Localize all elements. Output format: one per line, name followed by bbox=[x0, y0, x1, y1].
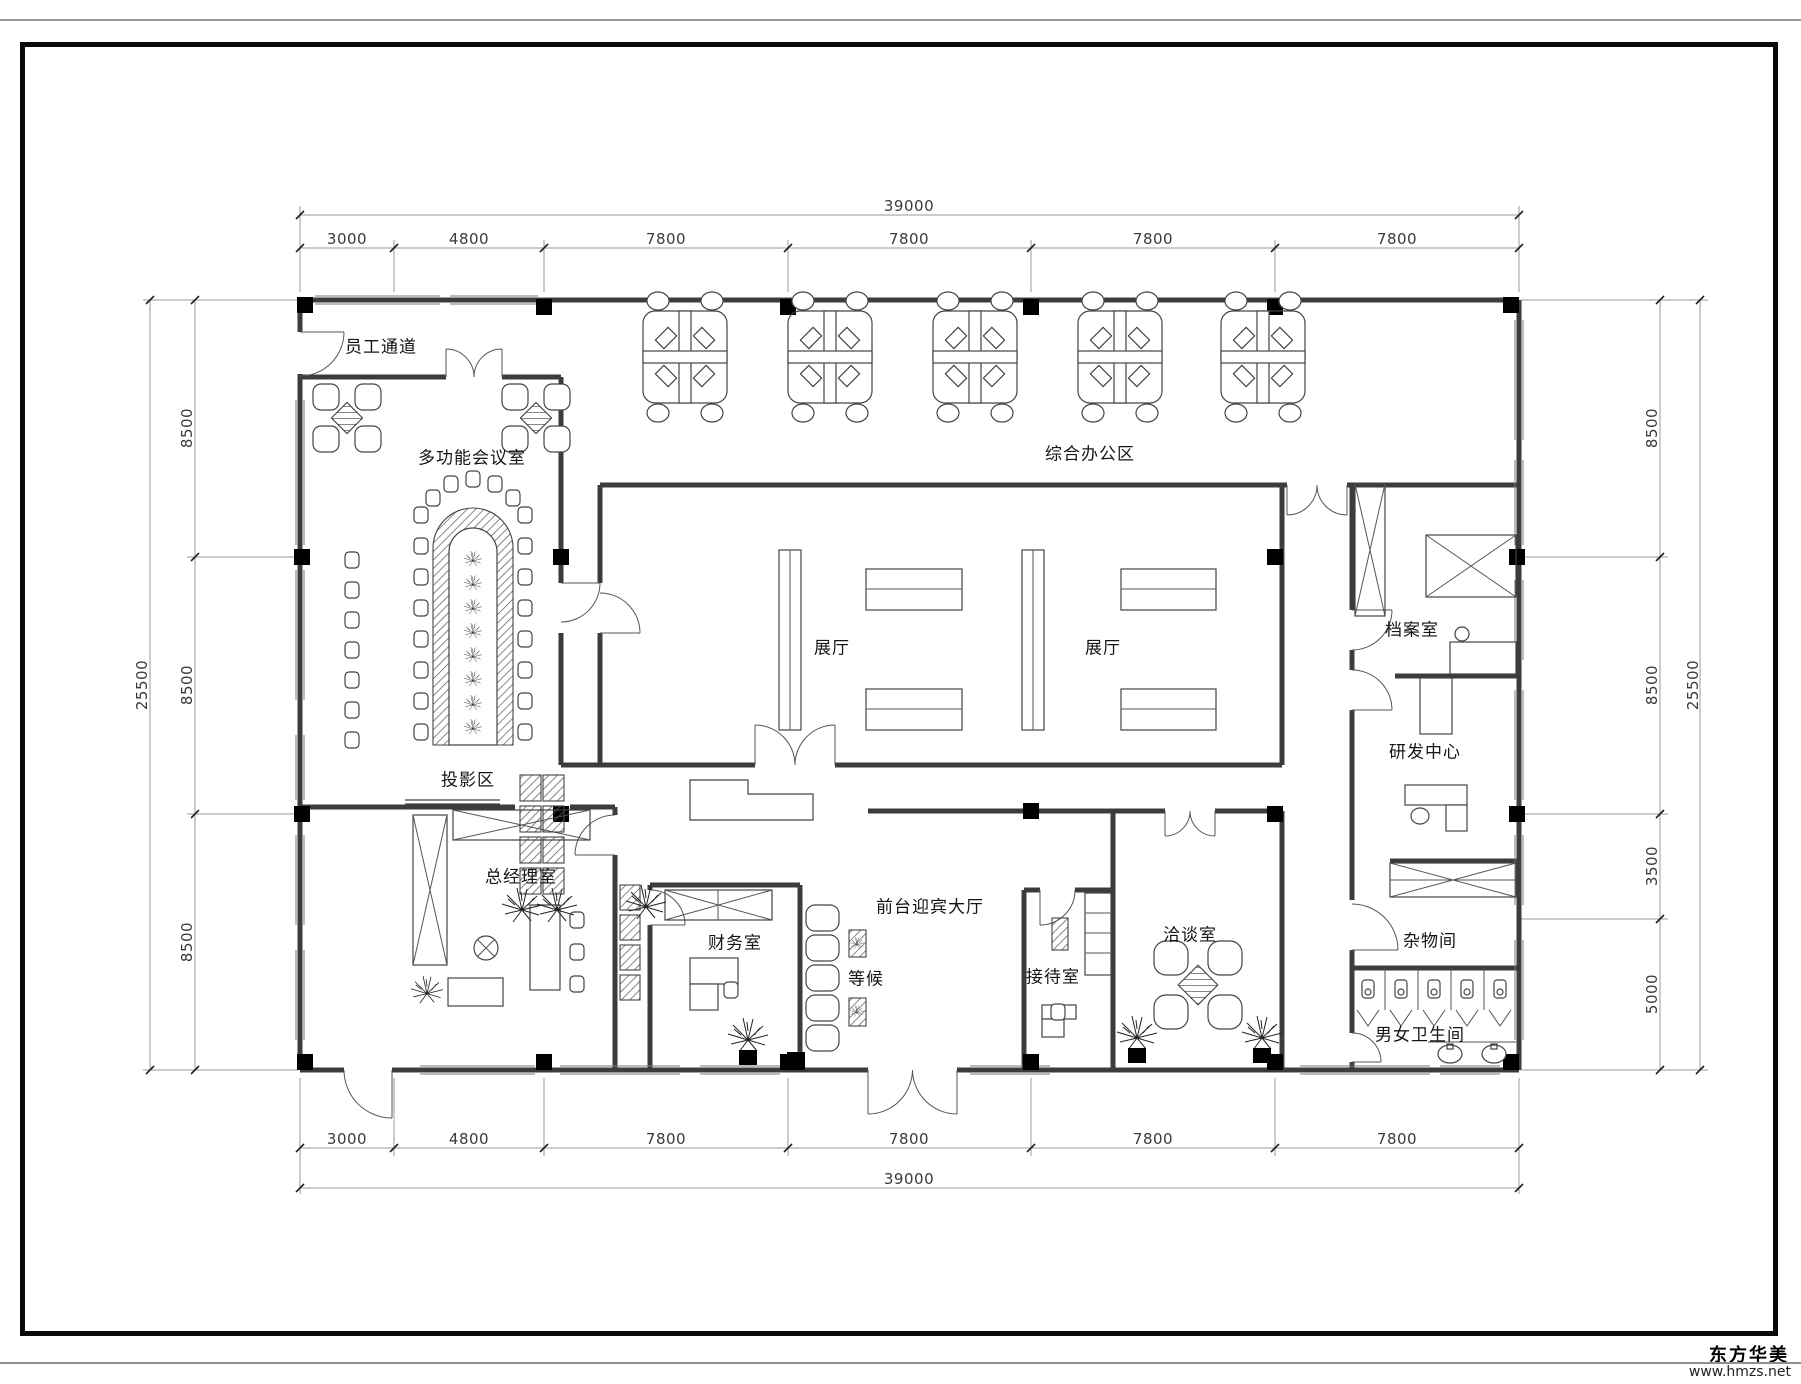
office-workstations bbox=[643, 292, 1305, 422]
archive-room-furniture bbox=[1355, 484, 1516, 674]
dim-bottom-seg: 7800 bbox=[1133, 1130, 1173, 1148]
waiting-sofas bbox=[806, 905, 839, 1051]
dim-left-total: 25500 bbox=[133, 660, 151, 710]
room-label-archive-room: 档案室 bbox=[1385, 616, 1439, 641]
room-label-projection-area: 投影区 bbox=[441, 766, 495, 791]
dim-top-seg: 3000 bbox=[327, 230, 367, 248]
room-label-meeting-room: 多功能会议室 bbox=[418, 444, 526, 469]
room-label-rd-center: 研发中心 bbox=[1389, 738, 1461, 763]
floor-plan-page: 员工通道 多功能会议室 综合办公区 展厅 展厅 档案室 研发中心 投影区 总经理… bbox=[0, 0, 1801, 1384]
room-label-finance-office: 财务室 bbox=[708, 929, 762, 954]
dim-top-seg: 7800 bbox=[1133, 230, 1173, 248]
room-label-exhibition-hall-2: 展厅 bbox=[1085, 634, 1121, 659]
dim-right-seg: 8500 bbox=[1643, 665, 1661, 705]
dim-left-seg: 8500 bbox=[178, 665, 196, 705]
dim-bottom-total: 39000 bbox=[884, 1170, 934, 1188]
room-label-lobby: 前台迎宾大厅 bbox=[876, 893, 984, 918]
dim-right-seg: 3500 bbox=[1643, 846, 1661, 886]
dim-bottom-seg: 3000 bbox=[327, 1130, 367, 1148]
dim-top-seg: 7800 bbox=[646, 230, 686, 248]
side-table bbox=[849, 930, 866, 957]
room-label-gm-office: 总经理室 bbox=[485, 863, 557, 888]
room-label-exhibition-hall-1: 展厅 bbox=[814, 634, 850, 659]
dim-top-total: 39000 bbox=[884, 197, 934, 215]
room-label-restroom: 男女卫生间 bbox=[1375, 1021, 1465, 1046]
rd-center-furniture bbox=[1390, 678, 1516, 897]
watermark-url: www.hmzs.net bbox=[1689, 1364, 1791, 1380]
dim-bottom-seg: 7800 bbox=[1377, 1130, 1417, 1148]
projection-screen bbox=[405, 800, 500, 804]
restroom-fixtures bbox=[1357, 968, 1516, 1063]
room-label-staff-corridor: 员工通道 bbox=[345, 333, 417, 358]
room-label-negotiation-room: 洽谈室 bbox=[1163, 921, 1217, 946]
dim-top-seg: 4800 bbox=[449, 230, 489, 248]
room-label-office-area: 综合办公区 bbox=[1045, 440, 1135, 465]
watermark-divider bbox=[0, 1362, 1801, 1364]
negotiation-room-furniture bbox=[1154, 941, 1242, 1029]
dim-bottom-seg: 4800 bbox=[449, 1130, 489, 1148]
dim-left-seg: 8500 bbox=[178, 408, 196, 448]
room-label-storage-room: 杂物间 bbox=[1403, 927, 1457, 952]
dim-bottom-seg: 7800 bbox=[889, 1130, 929, 1148]
dim-right-seg: 5000 bbox=[1643, 974, 1661, 1014]
room-label-waiting: 等候 bbox=[848, 965, 884, 990]
dim-bottom-seg: 7800 bbox=[646, 1130, 686, 1148]
room-label-reception-room: 接待室 bbox=[1026, 963, 1080, 988]
dim-top-seg: 7800 bbox=[1377, 230, 1417, 248]
reception-counter bbox=[690, 780, 813, 820]
wall-chair-row bbox=[345, 552, 359, 748]
dim-right-total: 25500 bbox=[1684, 660, 1702, 710]
dim-right-seg: 8500 bbox=[1643, 408, 1661, 448]
dim-top-seg: 7800 bbox=[889, 230, 929, 248]
dim-left-seg: 8500 bbox=[178, 922, 196, 962]
